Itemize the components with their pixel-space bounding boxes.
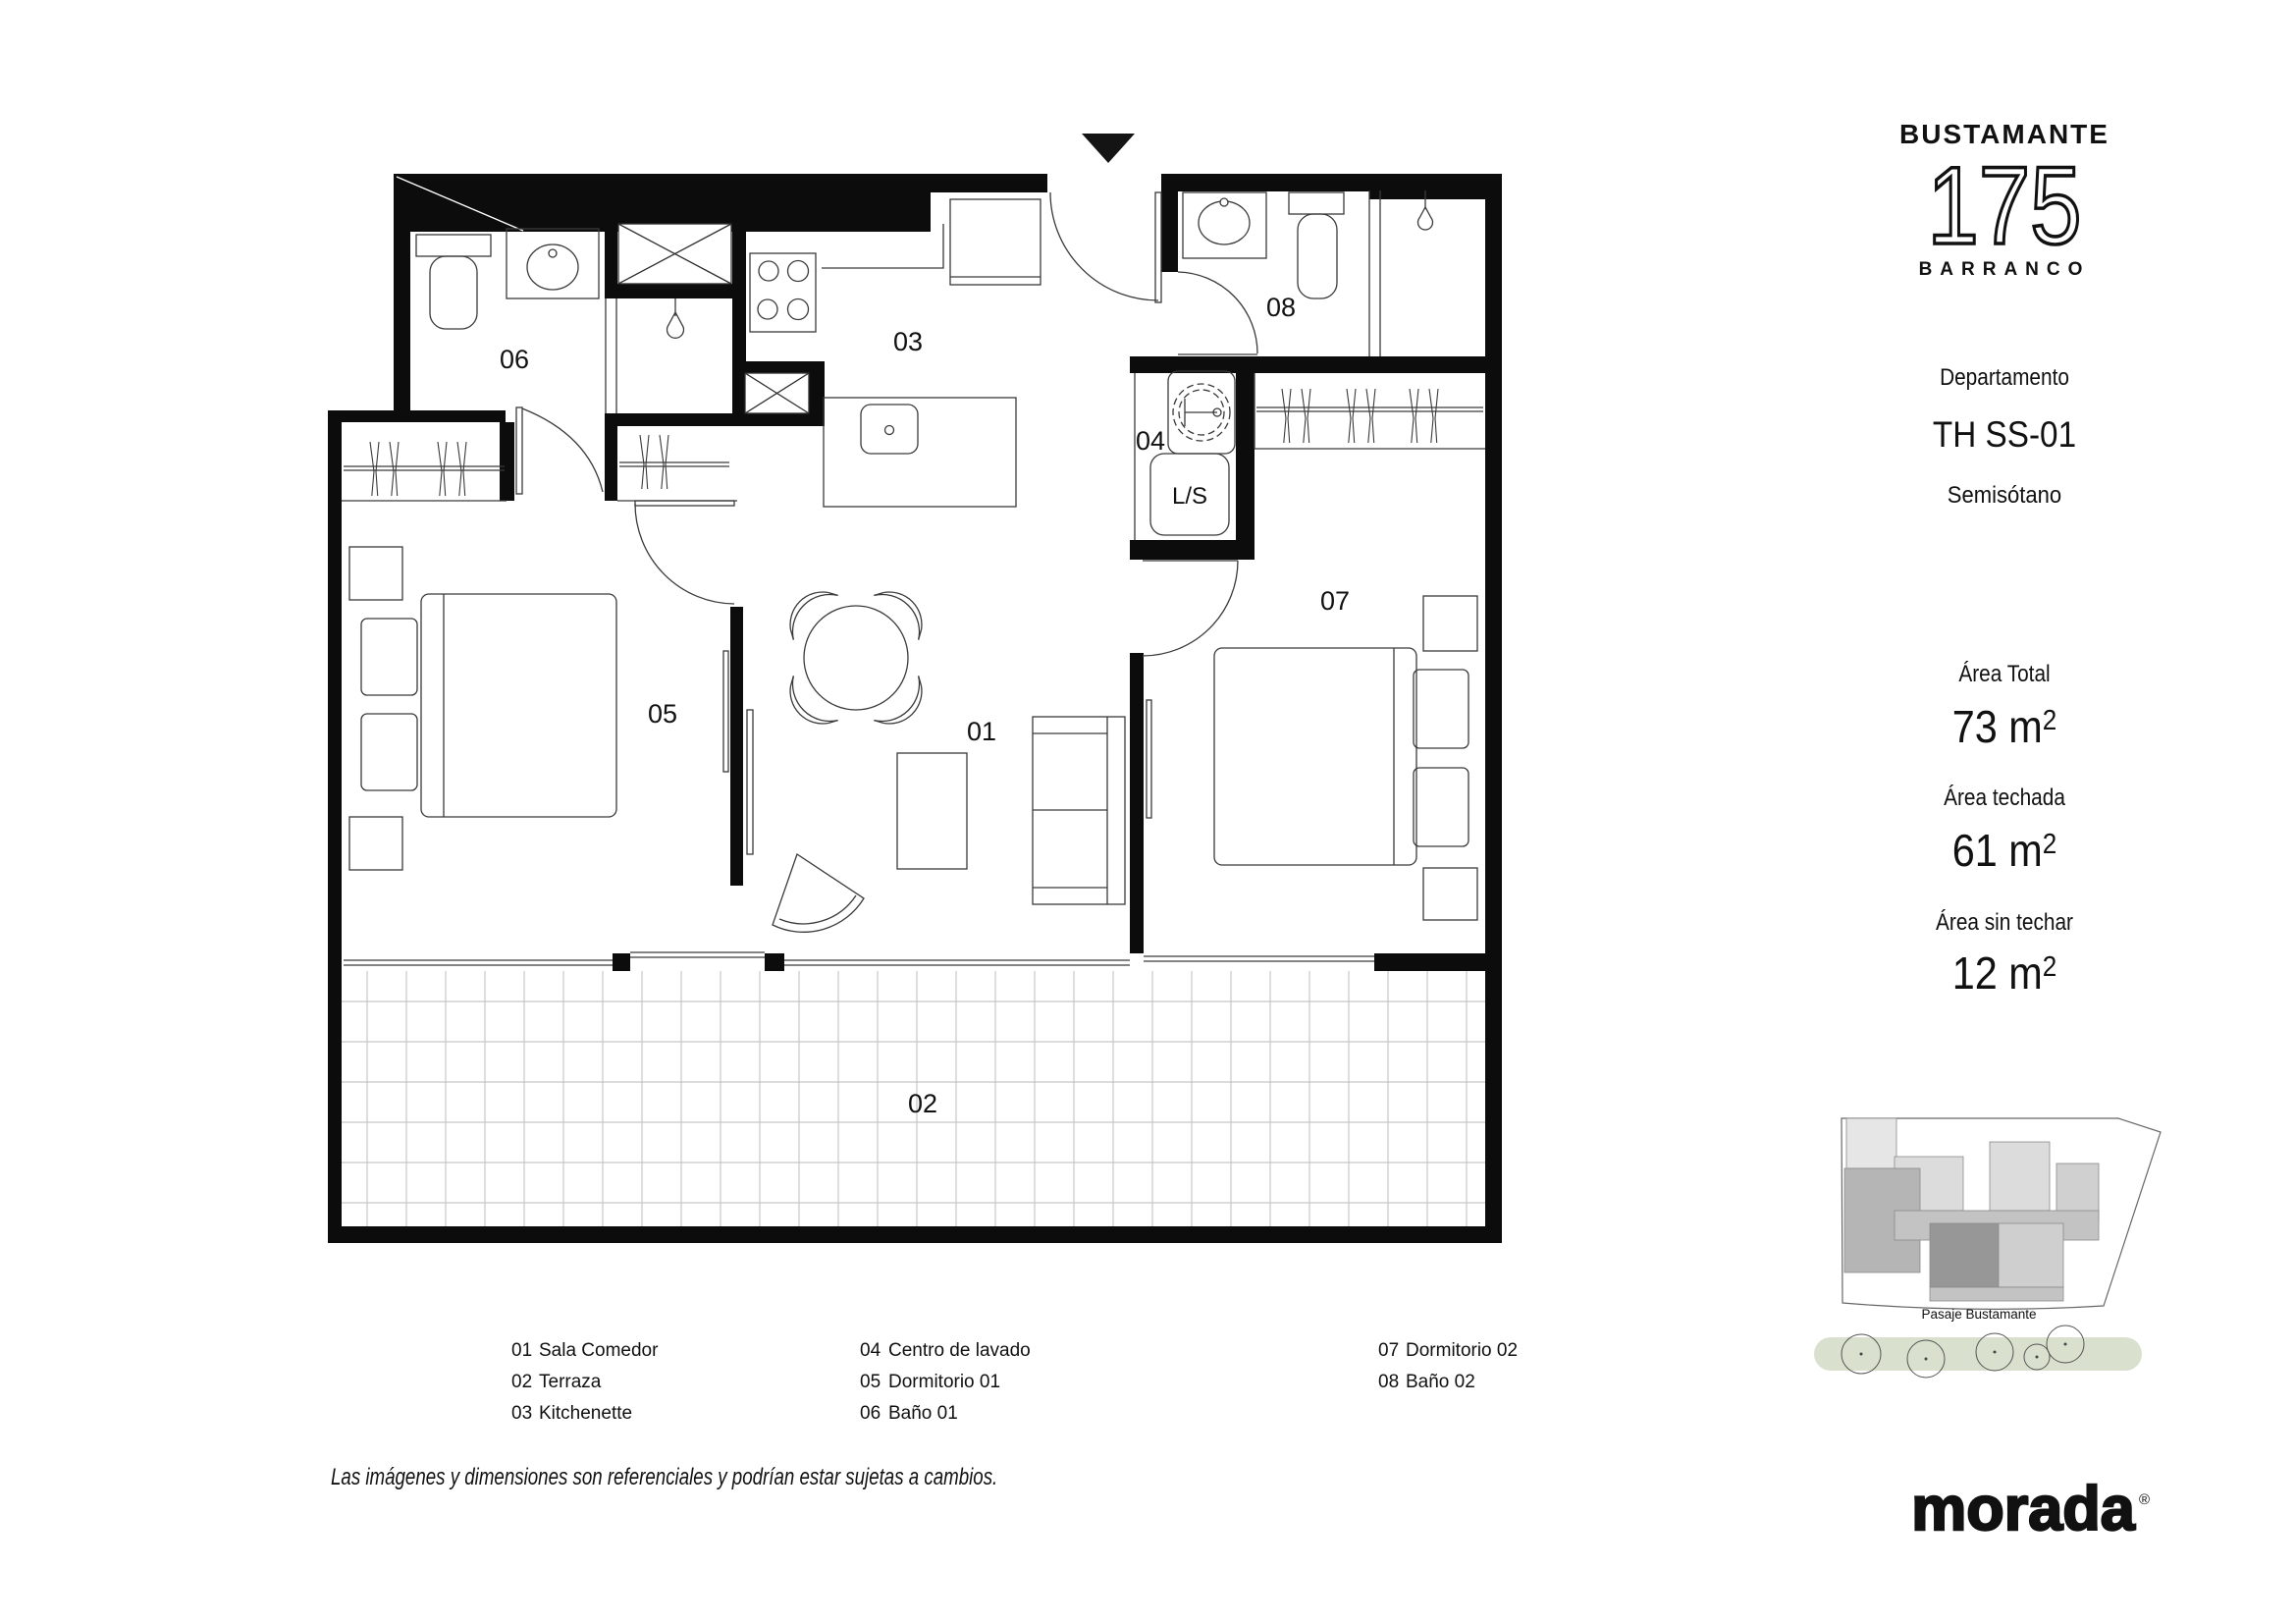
svg-text:06: 06: [500, 345, 529, 374]
svg-text:Departamento: Departamento: [1940, 362, 2069, 390]
svg-text:Baño 02: Baño 02: [1406, 1372, 1475, 1392]
svg-text:Semisótano: Semisótano: [1948, 481, 2061, 508]
svg-text:61 m2: 61 m2: [1952, 826, 2057, 877]
svg-text:®: ®: [2139, 1491, 2150, 1508]
svg-text:08: 08: [1378, 1372, 1399, 1392]
svg-text:01: 01: [967, 717, 996, 746]
svg-text:01: 01: [511, 1340, 532, 1361]
svg-text:morada: morada: [1911, 1475, 2136, 1543]
svg-text:Baño 01: Baño 01: [888, 1403, 958, 1424]
svg-text:02: 02: [908, 1089, 937, 1118]
svg-text:73 m2: 73 m2: [1952, 702, 2057, 753]
svg-text:175: 175: [1928, 143, 2082, 267]
svg-text:BARRANCO: BARRANCO: [1919, 259, 2091, 280]
svg-text:06: 06: [860, 1403, 881, 1424]
svg-text:L/S: L/S: [1172, 483, 1207, 510]
svg-text:03: 03: [893, 327, 923, 356]
svg-text:TH SS-01: TH SS-01: [1933, 414, 2076, 455]
svg-text:07: 07: [1320, 586, 1350, 616]
svg-text:Dormitorio 01: Dormitorio 01: [888, 1372, 1000, 1392]
svg-text:Pasaje Bustamante: Pasaje Bustamante: [1921, 1307, 2036, 1322]
svg-text:Área sin techar: Área sin techar: [1936, 907, 2073, 935]
svg-text:Las imágenes y dimensiones son: Las imágenes y dimensiones son referenci…: [331, 1464, 997, 1490]
svg-text:08: 08: [1266, 293, 1296, 322]
svg-text:04: 04: [860, 1340, 881, 1361]
svg-text:07: 07: [1378, 1340, 1399, 1361]
svg-text:Dormitorio 02: Dormitorio 02: [1406, 1340, 1518, 1361]
svg-text:04: 04: [1136, 426, 1165, 456]
svg-text:02: 02: [511, 1372, 532, 1392]
svg-text:Kitchenette: Kitchenette: [539, 1403, 632, 1424]
svg-text:Área techada: Área techada: [1944, 783, 2065, 810]
svg-text:Centro de lavado: Centro de lavado: [888, 1340, 1031, 1361]
svg-text:05: 05: [860, 1372, 881, 1392]
svg-text:03: 03: [511, 1403, 532, 1424]
svg-text:Sala Comedor: Sala Comedor: [539, 1340, 659, 1361]
svg-text:12 m2: 12 m2: [1952, 948, 2057, 1000]
svg-text:05: 05: [648, 699, 677, 729]
svg-text:Terraza: Terraza: [539, 1372, 602, 1392]
svg-text:Área Total: Área Total: [1958, 659, 2050, 686]
